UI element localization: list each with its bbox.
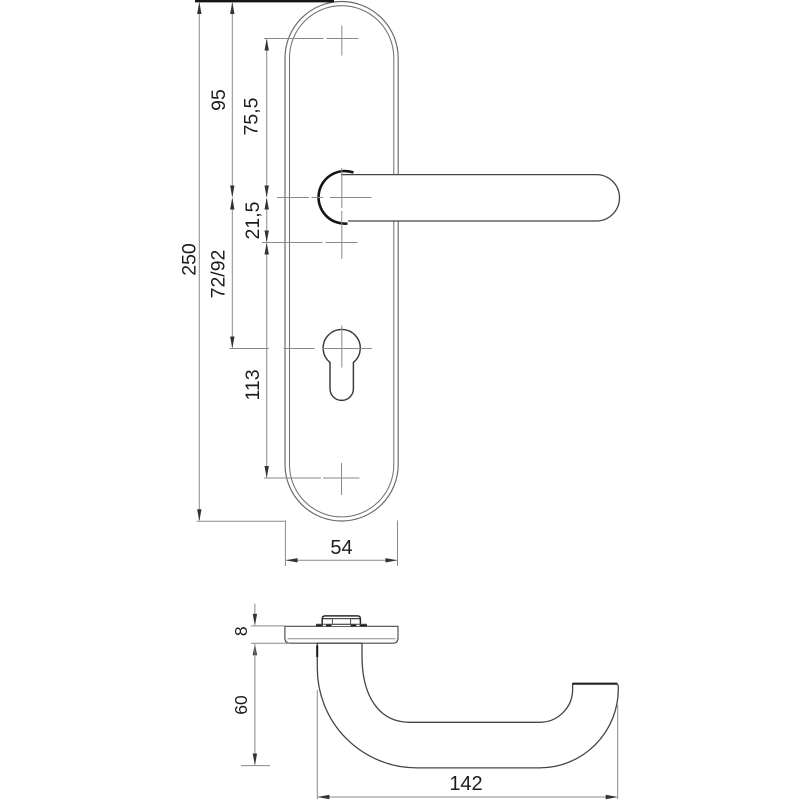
svg-text:8: 8 [231, 626, 251, 636]
svg-text:250: 250 [179, 243, 201, 276]
svg-text:72/92: 72/92 [208, 250, 230, 299]
svg-text:54: 54 [330, 537, 352, 559]
svg-text:21,5: 21,5 [242, 201, 264, 239]
svg-text:95: 95 [208, 89, 230, 111]
svg-text:60: 60 [231, 695, 251, 715]
svg-text:142: 142 [449, 773, 482, 795]
svg-text:113: 113 [242, 369, 264, 400]
svg-text:75,5: 75,5 [241, 97, 263, 135]
